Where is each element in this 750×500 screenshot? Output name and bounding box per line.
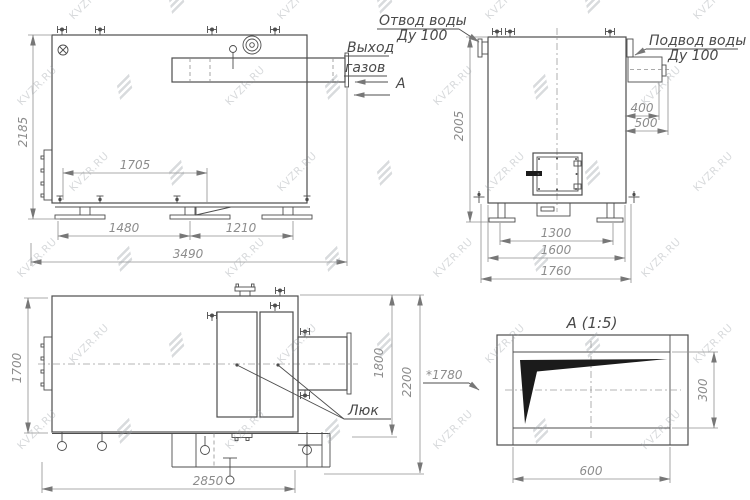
dim-side-height: 2005 [452, 111, 466, 142]
valve-icon [493, 28, 502, 37]
anchor-bolt-icon [57, 196, 64, 203]
valve-icon [271, 26, 280, 35]
valve-icon [208, 312, 217, 321]
valve-icon [276, 287, 285, 296]
corner-jack-icon [474, 191, 485, 203]
anchor-bolt-icon [174, 196, 181, 203]
valve-icon [271, 302, 280, 311]
water-inlet-callout: Подвод воды Ду 100 [635, 33, 746, 64]
section-letter: А [395, 76, 406, 92]
water-outlet-label: Отвод воды [379, 13, 467, 29]
duct-top-view [298, 337, 347, 390]
dim-detail-1780: *1780 [426, 368, 463, 382]
side-hatch-door [526, 153, 582, 195]
valve-icon [506, 28, 515, 37]
hatch-label: Люк [347, 403, 379, 419]
round-foot-icon [58, 432, 67, 451]
dim-side-400: 400 [631, 101, 654, 115]
dim-side-1300: 1300 [541, 226, 572, 240]
water-inlet-label: Подвод воды [649, 33, 746, 49]
dim-front-1210: 1210 [226, 221, 257, 235]
flange-circle-icon [243, 36, 261, 54]
valve-icon [58, 26, 67, 35]
door-flange [41, 150, 52, 200]
valve-icon [96, 26, 105, 35]
corner-jack-icon [629, 191, 640, 203]
dim-front-3490: 3490 [173, 247, 204, 261]
hatch-callout: Люк [235, 363, 391, 419]
front-dimensions: 2185 1705 1480 1210 3490 [16, 35, 347, 266]
valve-icon [301, 328, 310, 337]
chimney-stub [235, 284, 255, 296]
dim-top-2200: 2200 [400, 366, 414, 397]
top-view: Люк 1700 1800 2200 2850 [10, 284, 424, 493]
drawing-canvas: 2185 1705 1480 1210 3490 Выход газов А [0, 0, 750, 500]
side-view: 2005 400 500 1300 1600 1760 Отвод воды Д… [377, 13, 746, 283]
dim-top-1700: 1700 [10, 352, 24, 383]
dim-front-height: 2185 [16, 117, 30, 148]
valve-icon [208, 26, 217, 35]
support-skid [55, 207, 312, 219]
water-inlet-dn-label: Ду 100 [667, 48, 718, 64]
dim-front-1480: 1480 [109, 221, 140, 235]
gauge-icon [230, 46, 237, 70]
gas-outlet-label-2: газов [345, 60, 385, 76]
anchor-bolt-icon [304, 196, 311, 203]
side-dimensions: 2005 400 500 1300 1600 1760 [452, 37, 668, 283]
lower-frame [52, 432, 330, 484]
dim-detail-300: 300 [696, 378, 710, 401]
round-foot-icon [98, 432, 107, 451]
weld-section-shape [520, 359, 667, 424]
dim-front-1705: 1705 [120, 158, 151, 172]
door-flange-top [41, 337, 52, 390]
gas-outlet-label-1: Выход [347, 40, 394, 56]
water-outlet-dn-label: Ду 100 [396, 28, 447, 44]
dim-side-1600: 1600 [541, 243, 572, 257]
lifting-lug-icon [58, 45, 68, 55]
detail-dimensions: *1780 300 600 [423, 352, 718, 483]
gas-outlet-callout: Выход газов А [344, 40, 406, 95]
dim-side-500: 500 [635, 116, 658, 130]
dim-top-1800: 1800 [372, 347, 386, 378]
water-outlet-stub [478, 39, 488, 57]
valve-icon [606, 28, 615, 37]
detail-title: А (1:5) [566, 314, 618, 332]
technical-drawing: 2185 1705 1480 1210 3490 Выход газов А [0, 0, 750, 500]
side-base [489, 203, 623, 222]
front-view: 2185 1705 1480 1210 3490 Выход газов А [16, 26, 406, 266]
detail-view: А (1:5) *1780 300 600 [423, 314, 718, 483]
dim-side-1760: 1760 [541, 264, 572, 278]
round-foot-icon [201, 436, 210, 455]
dim-top-2850: 2850 [193, 474, 224, 488]
anchor-bolt-icon [97, 196, 104, 203]
dim-detail-600: 600 [580, 464, 603, 478]
